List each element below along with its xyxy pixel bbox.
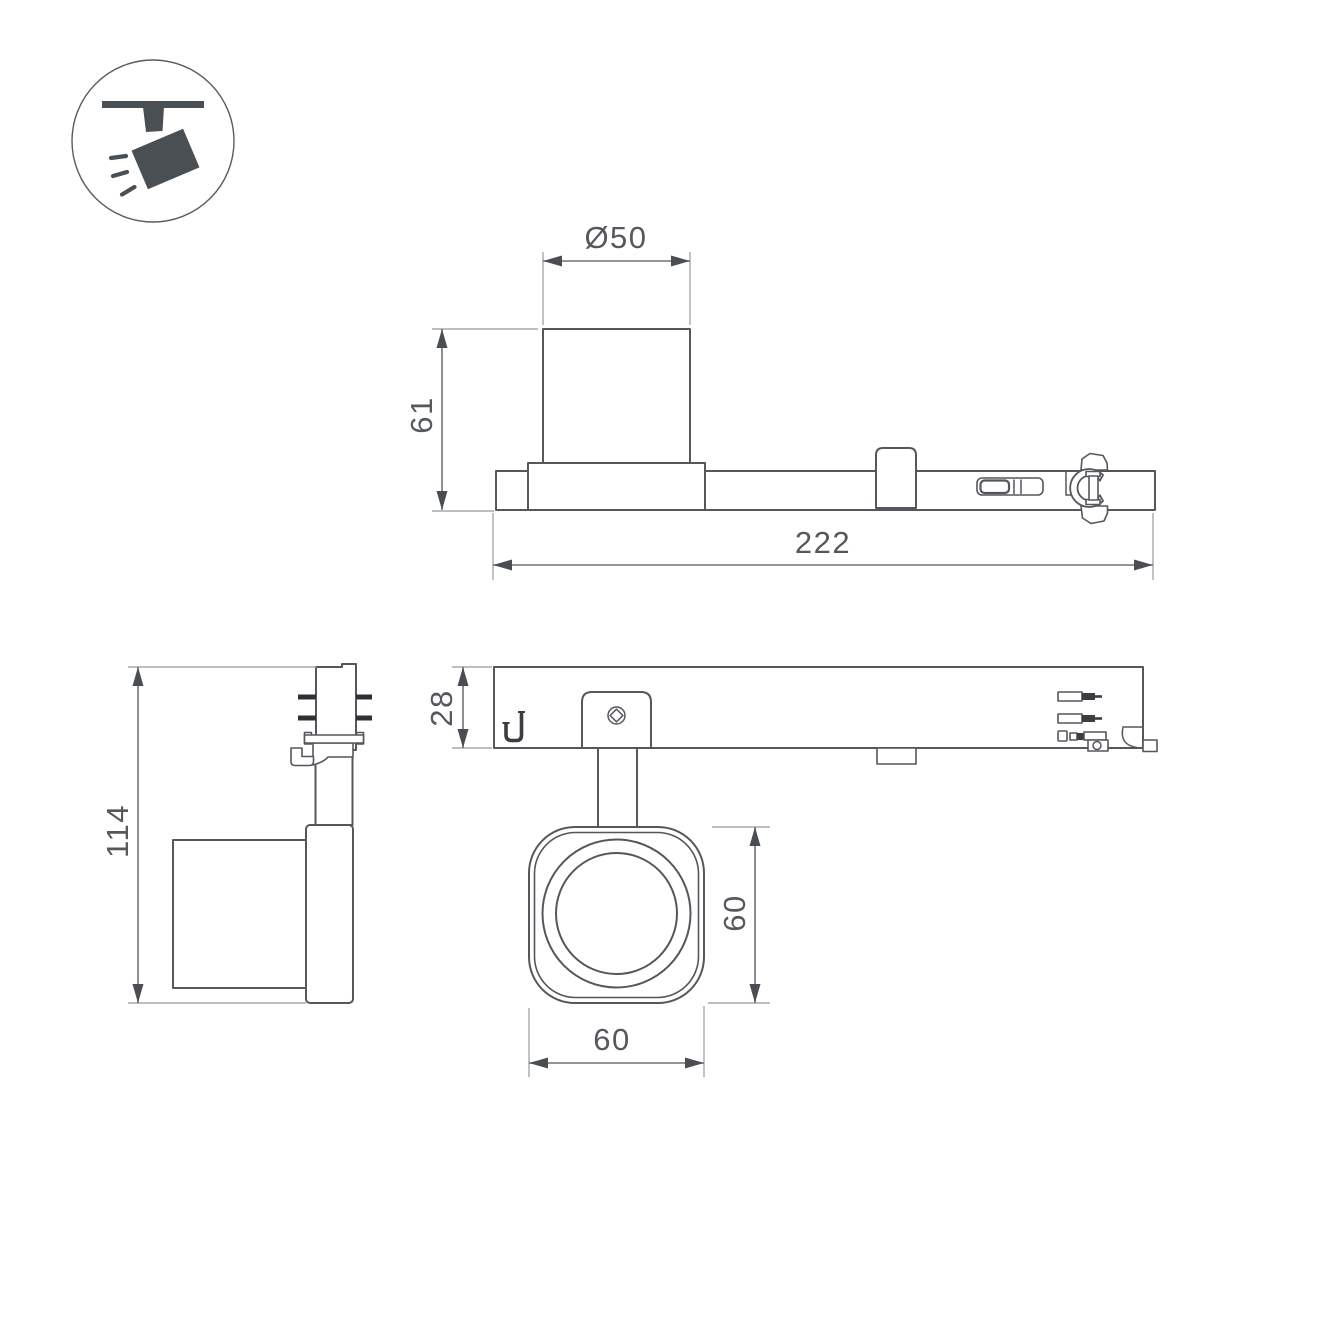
adapter-crossbar [305,735,364,743]
dim-face-height: 60 [708,827,770,1003]
lamp-cylinder [543,329,690,463]
lamp-face-view: 60 60 [529,827,770,1077]
end-step [1143,740,1157,752]
lamp-head-side [173,840,307,988]
lamp-flange [528,463,705,510]
plan-view: 28 [424,667,1157,826]
mount-block [876,448,916,508]
dim-label-track-height: 28 [424,689,459,726]
lamp-body-side [306,825,353,1003]
dim-label-head-height: 61 [404,396,439,433]
adapter-hook [291,748,314,766]
dim-total-length: 222 [493,513,1153,580]
dim-label-face-width: 60 [593,1022,630,1057]
dim-face-width: 60 [529,1006,704,1077]
side-elevation-view: Ø50 61 222 [404,220,1155,580]
latch-wing-bottom [1081,506,1108,524]
selector-switch [977,478,1043,495]
drawing-page: Ø50 61 222 [0,0,1331,1331]
bottom-tab [877,748,916,764]
dim-label-total-length: 222 [795,525,851,560]
dimension-drawing: Ø50 61 222 [0,0,1331,1331]
icon-circle [72,60,234,222]
icon-badge [72,60,234,222]
dim-head-diameter: Ø50 [543,220,690,325]
dim-label-face-height: 60 [717,894,752,931]
spotlight-stem [143,107,164,132]
latch-wing-top [1081,454,1108,471]
yoke-stem-plan [598,748,637,826]
mount-plate [582,692,651,748]
front-view: 114 [100,664,372,1003]
dim-label-head-diameter: Ø50 [584,220,647,255]
track-ceiling-bar [102,101,204,108]
dim-track-height: 28 [424,667,492,748]
dim-label-overall-height: 114 [100,804,135,858]
